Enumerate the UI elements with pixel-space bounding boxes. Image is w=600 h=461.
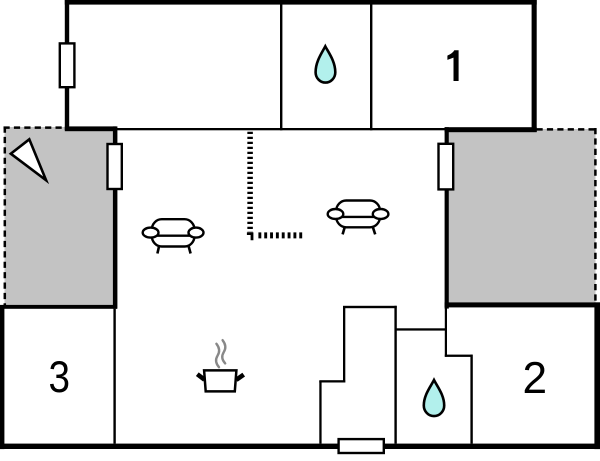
svg-text:2: 2 [523,354,548,403]
svg-text:3: 3 [48,353,70,402]
